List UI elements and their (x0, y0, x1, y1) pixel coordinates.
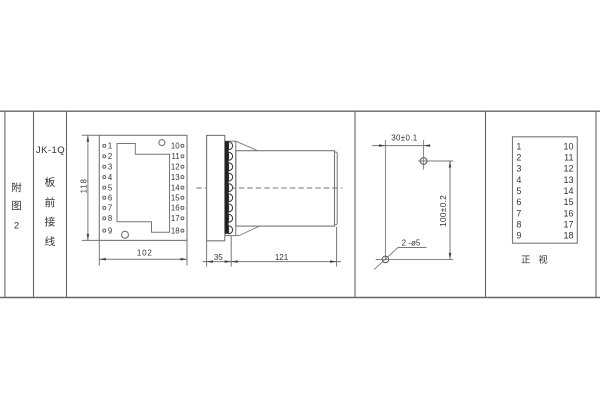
svg-text:17: 17 (171, 214, 180, 223)
svg-text:4: 4 (516, 175, 521, 185)
svg-text:118: 118 (80, 178, 89, 193)
svg-text:14: 14 (171, 183, 180, 192)
svg-text:5: 5 (108, 183, 113, 192)
svg-text:35: 35 (214, 253, 223, 262)
svg-text:2: 2 (516, 153, 521, 163)
svg-text:17: 17 (563, 220, 573, 230)
svg-text:13: 13 (563, 175, 573, 185)
svg-text:5: 5 (516, 186, 521, 196)
svg-text:121: 121 (275, 253, 289, 262)
svg-text:9: 9 (108, 226, 112, 235)
svg-text:1: 1 (516, 141, 521, 151)
svg-text:16: 16 (563, 208, 573, 218)
svg-text:3: 3 (108, 163, 112, 172)
svg-text:30±0.1: 30±0.1 (391, 133, 417, 142)
svg-text:2: 2 (14, 221, 19, 232)
svg-text:6: 6 (516, 197, 521, 207)
svg-text:11: 11 (564, 153, 573, 163)
svg-text:4: 4 (108, 173, 113, 182)
svg-text:10: 10 (563, 141, 573, 151)
svg-text:10: 10 (171, 142, 180, 151)
svg-text:1: 1 (108, 142, 112, 151)
svg-text:12: 12 (171, 163, 180, 172)
svg-text:12: 12 (563, 164, 573, 174)
svg-text:8: 8 (108, 214, 112, 223)
svg-text:2 -ø5: 2 -ø5 (402, 238, 421, 247)
svg-text:18: 18 (563, 231, 573, 241)
svg-text:9: 9 (516, 231, 521, 241)
svg-text:13: 13 (171, 173, 180, 182)
svg-text:100±0.2: 100±0.2 (438, 195, 448, 227)
svg-text:102: 102 (137, 249, 153, 258)
svg-text:JK-1Q: JK-1Q (36, 145, 65, 156)
svg-text:15: 15 (171, 194, 180, 203)
svg-text:16: 16 (171, 204, 180, 213)
svg-text:3: 3 (516, 164, 521, 174)
svg-text:2: 2 (108, 152, 112, 161)
svg-text:15: 15 (563, 197, 573, 207)
svg-text:11: 11 (172, 152, 180, 161)
svg-text:6: 6 (108, 194, 112, 203)
svg-text:7: 7 (516, 208, 521, 218)
svg-text:18: 18 (171, 226, 180, 235)
svg-text:14: 14 (563, 186, 573, 196)
svg-text:7: 7 (108, 204, 112, 213)
svg-text:8: 8 (516, 220, 521, 230)
